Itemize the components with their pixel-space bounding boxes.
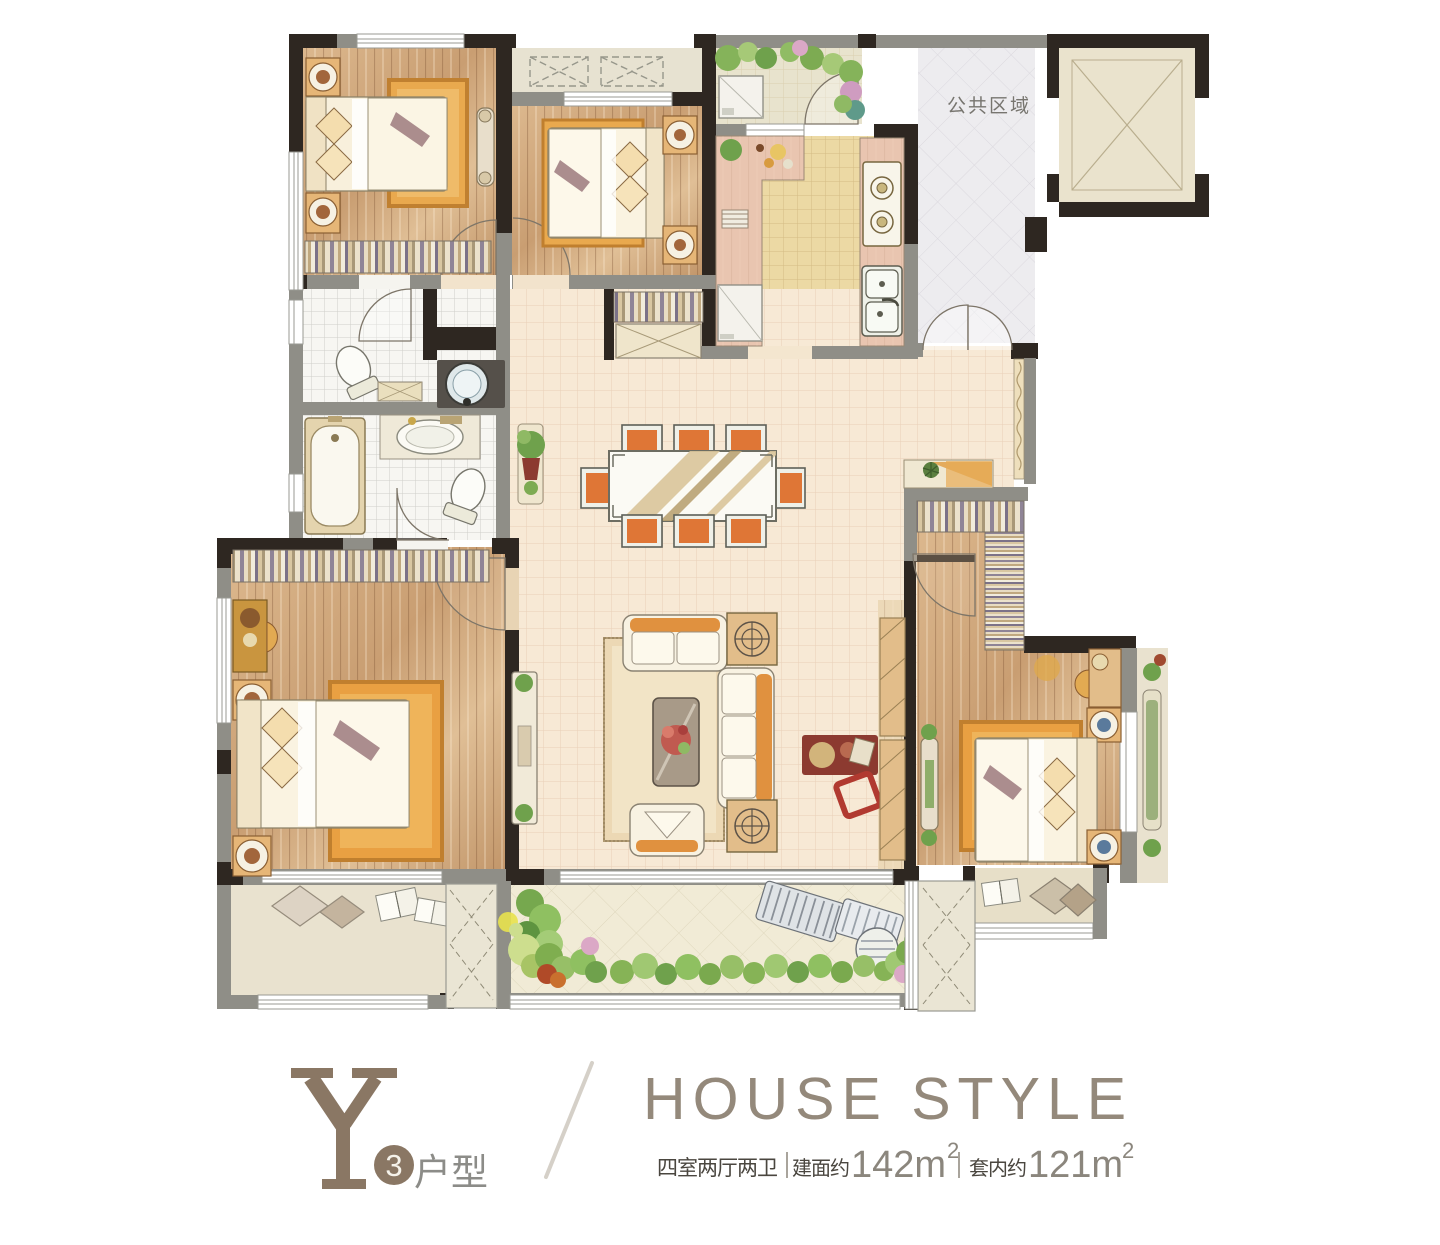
svg-text:2: 2: [1122, 1138, 1134, 1163]
svg-text:3: 3: [385, 1148, 402, 1183]
svg-text:HOUSE STYLE: HOUSE STYLE: [643, 1066, 1133, 1132]
svg-text:121m: 121m: [1028, 1144, 1123, 1186]
svg-text:四室两厅两卫: 四室两厅两卫: [657, 1157, 777, 1180]
svg-text:公共区域: 公共区域: [947, 95, 1031, 117]
svg-text:建面约: 建面约: [792, 1157, 849, 1180]
svg-text:套内约: 套内约: [969, 1157, 1026, 1180]
svg-text:2: 2: [947, 1138, 959, 1163]
svg-text:户型: 户型: [414, 1152, 488, 1193]
svg-text:142m: 142m: [851, 1144, 946, 1186]
